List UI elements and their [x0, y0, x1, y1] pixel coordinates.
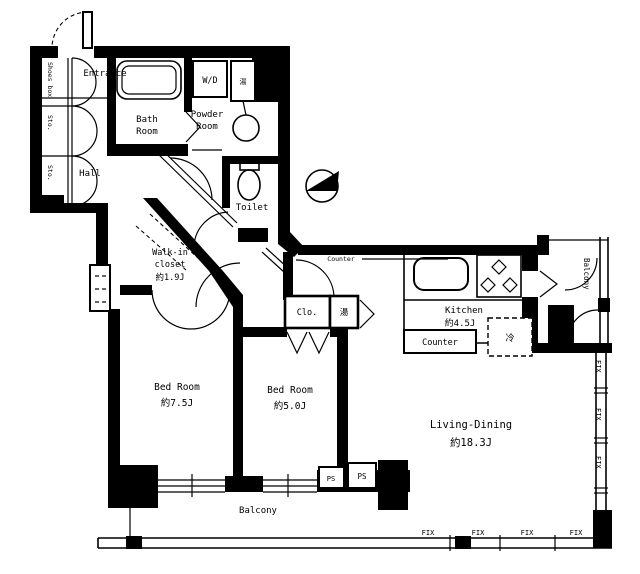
room-label-kitchen-1: Kitchen — [445, 306, 483, 316]
room-label-hall: Hall — [79, 169, 101, 179]
storage-bottom-label: Sto. — [46, 165, 54, 181]
floor-plan-svg: Shoes box Sto. Sto. Entrance Hall Bath R… — [0, 0, 640, 569]
fix-bottom-label-2: FIX — [472, 529, 485, 537]
room-label-powder-2: Room — [196, 122, 218, 132]
storage-top-label: Sto. — [46, 115, 54, 131]
room-label-bath-1: Bath — [136, 115, 158, 125]
room-label-living-1: Living-Dining — [430, 419, 512, 431]
fix-wall-right: FIX FIX FIX — [594, 350, 608, 515]
heater-folding-door — [360, 300, 374, 328]
room-label-wic-1: Walk-in — [152, 248, 188, 258]
stove-icon — [477, 255, 521, 297]
ps-left-label: PS — [327, 475, 335, 483]
washer-dryer-label: W/D — [202, 76, 217, 86]
room-label-powder-1: Powder — [191, 110, 224, 120]
room-label-bedroom1-2: 約7.5J — [161, 397, 193, 409]
storage-door-arc1 — [72, 106, 97, 156]
ps-right-label: PS — [357, 472, 367, 481]
stove-burner-3 — [503, 278, 517, 292]
kitchen-sink-icon — [414, 258, 468, 290]
fix-right-label-2: FIX — [594, 408, 602, 421]
room-label-bedroom1-1: Bed Room — [154, 382, 200, 393]
shoes-box-label: Shoes box — [46, 62, 54, 97]
room-label-bedroom2-2: 約5.0J — [274, 400, 306, 412]
toilet-icon — [238, 170, 260, 200]
kitchen-service-door — [540, 271, 557, 297]
entrance-door-leaf — [83, 12, 92, 48]
ld-entry-door-arc — [296, 260, 334, 298]
closet-bifold-left — [287, 332, 307, 353]
wall-counter-label: Counter — [327, 255, 354, 263]
bedroom2-sliding-window — [263, 474, 317, 497]
washbasin-icon — [233, 115, 259, 141]
stove-burner-1 — [492, 260, 506, 274]
kitchen-counter-label: Counter — [422, 338, 458, 348]
closet-bifold-right — [309, 332, 329, 353]
water-heater-mid-label: 湯 — [340, 307, 349, 318]
basin-pipe — [243, 101, 246, 115]
closet-label: Clo. — [297, 308, 317, 318]
niche-label: Niche — [239, 236, 260, 244]
fix-bottom-label-3: FIX — [521, 529, 534, 537]
wic-door-arc-left — [152, 290, 191, 329]
water-heater-top-label: 湯 — [240, 77, 247, 86]
bedroom1-sliding-window — [158, 474, 225, 497]
room-label-toilet: Toilet — [236, 203, 269, 213]
balcony-right-label: Balcony — [582, 258, 591, 290]
balcony-bottom-label: Balcony — [239, 506, 278, 516]
fix-right-label-3: FIX — [594, 456, 602, 469]
balcony-door-arc-upper — [565, 258, 597, 290]
fix-bottom-label-4: FIX — [570, 529, 583, 537]
room-label-bedroom2-1: Bed Room — [267, 385, 313, 396]
shoesbox-door-arc — [72, 58, 96, 106]
room-label-entrance: Entrance — [83, 69, 126, 79]
room-label-wic-3: 約1.9J — [156, 272, 185, 283]
corridor-wic: Walk-in closet 約1.9J — [90, 148, 240, 329]
refrigerator-label: 冷 — [505, 332, 514, 344]
powder-room: W/D 湯 Powder Room — [191, 61, 259, 150]
floor-plan-image: Shoes box Sto. Sto. Entrance Hall Bath R… — [0, 0, 640, 569]
fix-bottom-label-1: FIX — [422, 529, 435, 537]
shaft-hatch-box — [90, 265, 110, 311]
fix-right-label-1: FIX — [594, 360, 602, 373]
room-label-bath-2: Room — [136, 127, 158, 137]
room-label-living-2: 約18.3J — [450, 436, 492, 449]
storage-door-arc2 — [72, 156, 97, 206]
bottom-band: PS PS Balcony FIX FIX FIX FIX — [98, 463, 612, 551]
room-label-wic-2: closet — [155, 260, 186, 270]
room-label-kitchen-2: 約4.5J — [445, 317, 476, 329]
bathtub-inner — [122, 66, 176, 94]
stove-burner-2 — [481, 278, 495, 292]
